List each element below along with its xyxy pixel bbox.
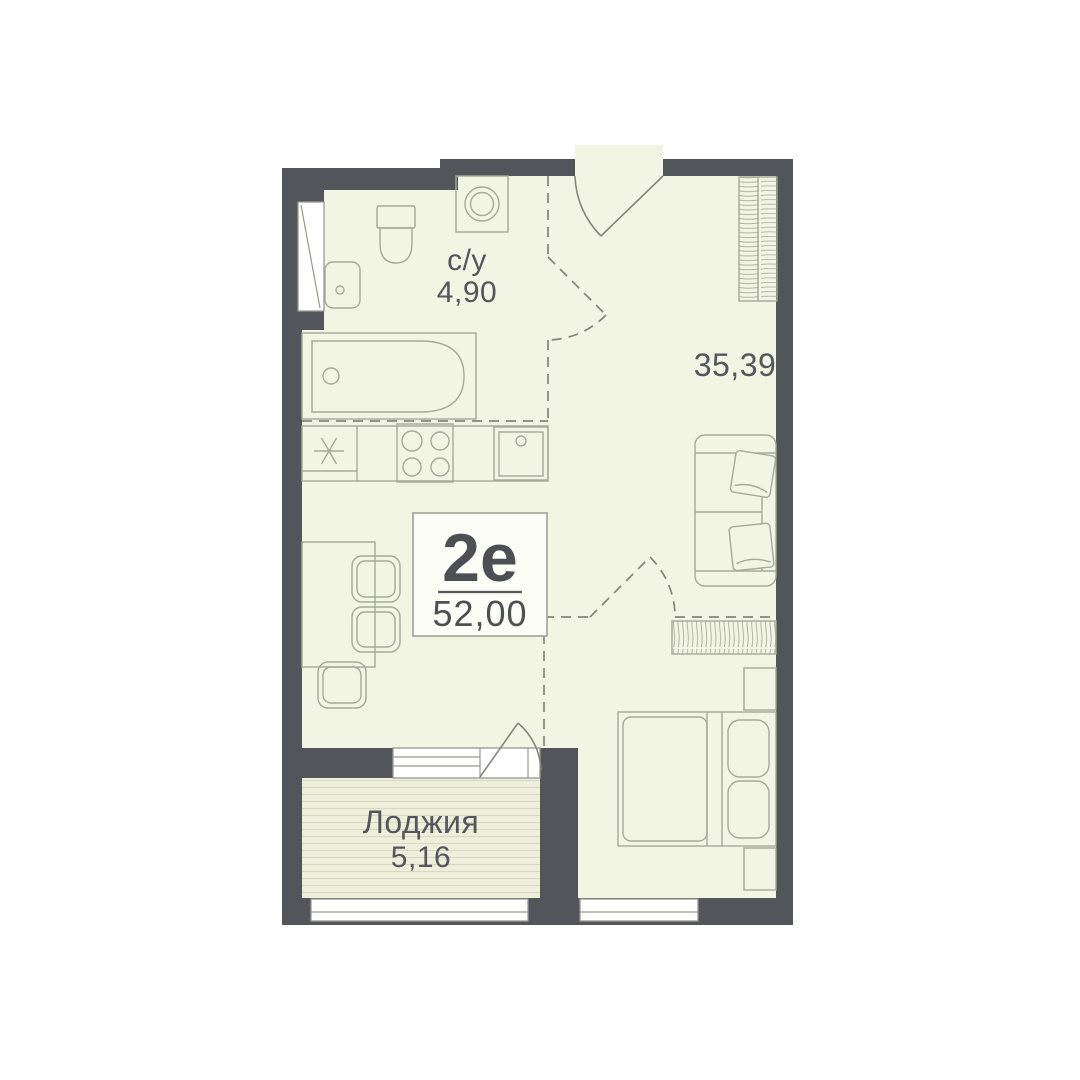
wardrobe-icon (739, 177, 777, 301)
entrance-niche-floor (575, 145, 663, 176)
unit-type-label: 2е (442, 520, 518, 596)
bed-pillow-icon (728, 781, 769, 838)
loggia-bottom-window (311, 899, 528, 921)
left-window (298, 202, 324, 311)
dresser-icon (672, 621, 776, 654)
unit-total-area: 52,00 (432, 593, 527, 634)
loggia-label: Лоджия (363, 804, 479, 840)
living-room-area: 35,39 (694, 347, 777, 383)
unit-info-box: 2е 52,00 (413, 513, 547, 636)
bedroom-bottom-window (580, 899, 698, 921)
main-room-floor (302, 172, 776, 748)
floor-plan-page: с/у 4,90 35,39 Лоджия 5,16 2е 52,00 (0, 0, 1080, 1080)
loggia-area: 5,16 (391, 841, 451, 874)
bathroom-area: 4,90 (437, 276, 497, 309)
pillow-icon (729, 523, 774, 571)
bed-pillow-icon (728, 720, 769, 777)
pillow-icon (730, 450, 776, 498)
bathroom-label: с/у (447, 244, 487, 277)
floor-plan-svg: с/у 4,90 35,39 Лоджия 5,16 2е 52,00 (0, 0, 1080, 1080)
